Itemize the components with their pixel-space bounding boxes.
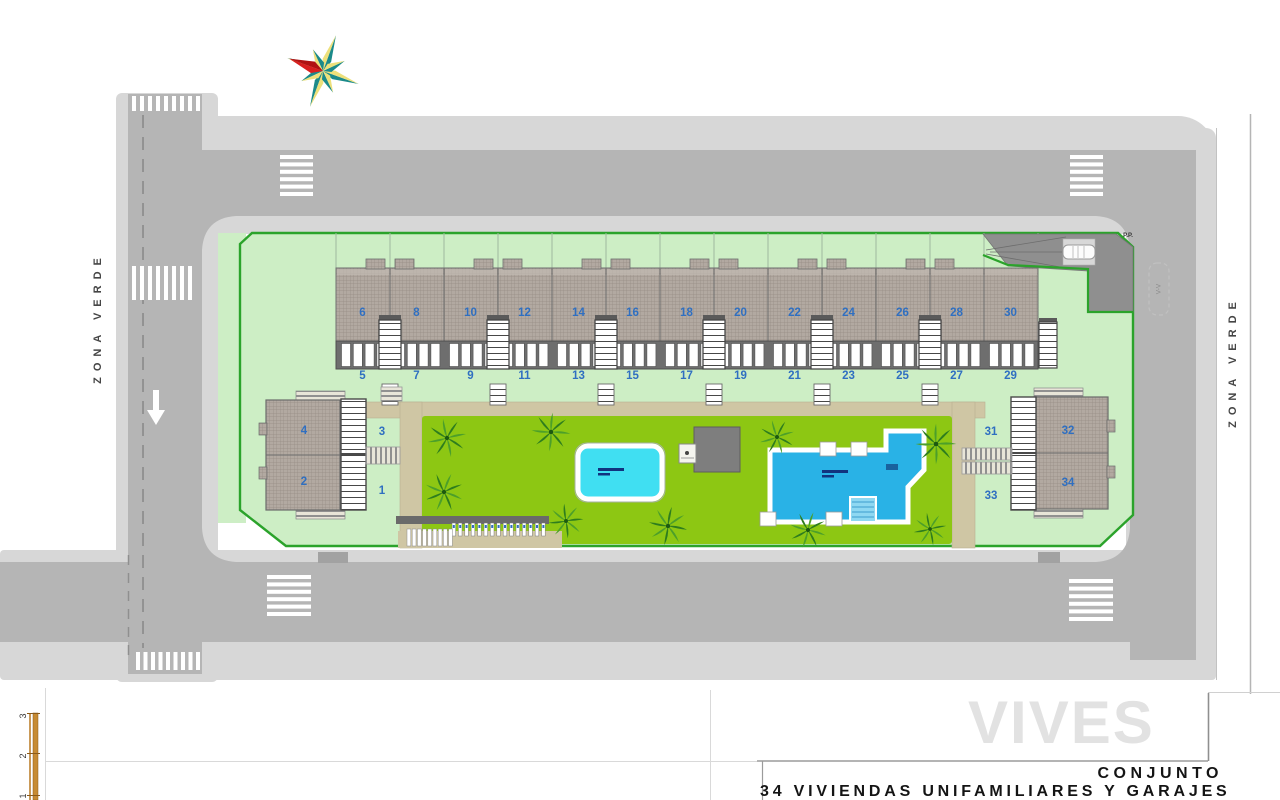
house-number: 23 [842,370,855,382]
house-number: 16 [626,307,639,319]
house-number: 17 [680,370,693,382]
house-number: 15 [626,370,639,382]
house-number: 18 [680,307,693,319]
house-number: 10 [464,307,477,319]
house-number: 30 [1004,307,1017,319]
house-number: 1 [379,485,385,497]
house-number: 6 [359,307,365,319]
house-number: 13 [572,370,585,382]
house-number: 19 [734,370,747,382]
house-number: 28 [950,307,963,319]
house-number: 22 [788,307,801,319]
zona-verde-label-west: ZONA VERDE [92,252,104,384]
house-number: 32 [1062,425,1075,437]
house-number: 2 [301,476,307,488]
house-number: 7 [413,370,419,382]
house-number: 26 [896,307,909,319]
house-number: 25 [896,370,909,382]
house-number: 12 [518,307,531,319]
house-number: 24 [842,307,855,319]
house-number: 4 [301,425,307,437]
house-number: 14 [572,307,585,319]
house-number: 34 [1062,477,1075,489]
title-project-type: CONJUNTO [1098,765,1224,783]
plan-labels: ZONA VERDE ZONA VERDE P.P. V-V 3 2 1 VIV… [0,0,1280,800]
ramp-label: P.P. [1123,233,1133,239]
house-number: 31 [985,426,998,438]
house-number: 8 [413,307,419,319]
zona-verde-label-east: ZONA VERDE [1227,296,1239,428]
house-number: 9 [467,370,473,382]
title-project-name: 34 VIVIENDAS UNIFAMILIARES Y GARAJES [760,783,1231,800]
road-marking-label: V-V [1156,284,1163,294]
watermark: VIVES [968,688,1155,757]
house-number: 11 [518,370,530,382]
scale-tick: 1 [18,793,28,798]
house-number: 5 [359,370,365,382]
house-number: 21 [788,370,801,382]
scale-tick: 3 [18,713,28,718]
house-number: 27 [950,370,963,382]
house-number: 29 [1004,370,1017,382]
scale-tick: 2 [18,753,28,758]
house-number: 33 [985,490,998,502]
house-number: 3 [379,426,385,438]
site-plan-sheet: ZONA VERDE ZONA VERDE P.P. V-V 3 2 1 VIV… [0,0,1280,800]
house-number: 20 [734,307,747,319]
